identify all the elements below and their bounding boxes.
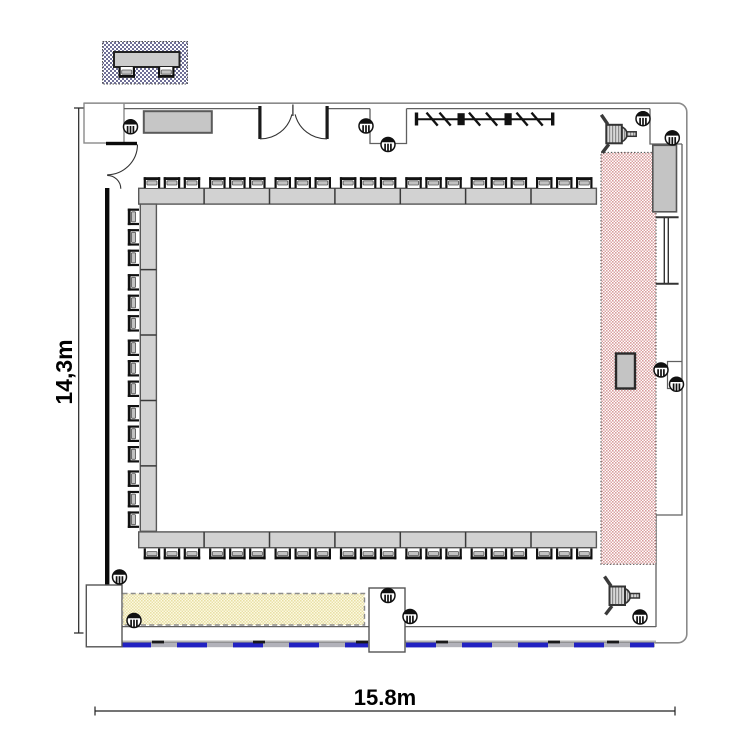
svg-text:14,3m: 14,3m xyxy=(51,339,77,404)
svg-text:15.8m: 15.8m xyxy=(354,685,416,710)
